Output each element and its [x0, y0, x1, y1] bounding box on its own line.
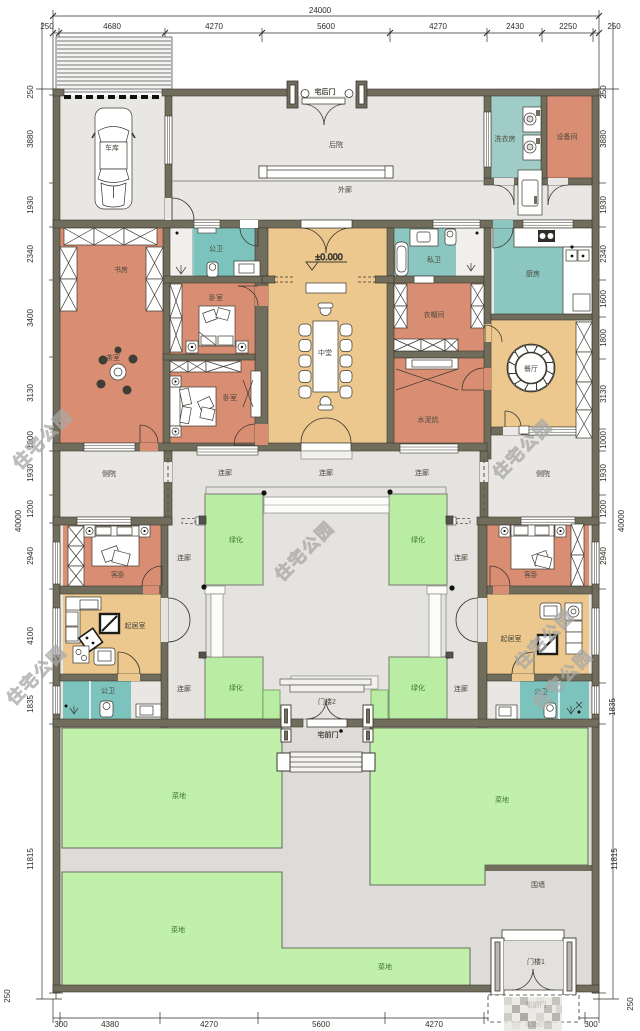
- svg-text:公卫: 公卫: [209, 245, 223, 253]
- svg-text:4100: 4100: [26, 627, 35, 645]
- svg-text:300: 300: [54, 1020, 68, 1029]
- svg-text:卧室: 卧室: [223, 393, 237, 402]
- svg-text:11815: 11815: [610, 848, 619, 870]
- svg-text:2430: 2430: [506, 22, 524, 31]
- svg-text:3880: 3880: [26, 130, 35, 148]
- svg-text:水泥炕: 水泥炕: [418, 415, 439, 424]
- svg-text:250: 250: [599, 85, 608, 99]
- svg-text:1200: 1200: [26, 500, 35, 518]
- svg-text:4270: 4270: [425, 1020, 443, 1029]
- svg-text:1930: 1930: [599, 464, 608, 482]
- svg-text:1930: 1930: [26, 196, 35, 214]
- svg-text:5600: 5600: [312, 1020, 330, 1029]
- svg-text:菜地: 菜地: [172, 791, 186, 800]
- svg-text:中堂: 中堂: [318, 348, 332, 357]
- svg-text:茶室: 茶室: [106, 353, 120, 362]
- svg-text:4270: 4270: [200, 1020, 218, 1029]
- svg-text:1800: 1800: [599, 329, 608, 347]
- svg-text:厨房: 厨房: [526, 269, 540, 278]
- svg-text:4270: 4270: [205, 22, 223, 31]
- svg-text:连廊: 连廊: [177, 553, 191, 562]
- svg-text:250: 250: [607, 22, 621, 31]
- svg-text:3880: 3880: [599, 130, 608, 148]
- svg-text:2940: 2940: [26, 547, 35, 565]
- svg-text:1000: 1000: [599, 431, 608, 449]
- svg-text:菜地: 菜地: [495, 795, 509, 804]
- svg-text:后院: 后院: [329, 140, 343, 149]
- svg-text:连廊: 连廊: [454, 684, 468, 693]
- svg-text:连廊: 连廊: [415, 468, 429, 477]
- svg-text:外廊: 外廊: [338, 185, 352, 194]
- svg-text:300: 300: [584, 1020, 598, 1029]
- svg-text:1600: 1600: [599, 290, 608, 308]
- svg-text:1200: 1200: [599, 500, 608, 518]
- svg-text:4680: 4680: [103, 22, 121, 31]
- svg-text:设备间: 设备间: [557, 132, 578, 141]
- svg-text:车库: 车库: [105, 143, 119, 152]
- svg-text:起居室: 起居室: [125, 621, 146, 630]
- svg-text:2340: 2340: [26, 245, 35, 263]
- svg-text:2340: 2340: [599, 245, 608, 263]
- svg-text:宅后门: 宅后门: [315, 87, 336, 96]
- svg-text:菜地: 菜地: [378, 962, 392, 971]
- svg-text:宅前门: 宅前门: [318, 730, 339, 739]
- svg-text:衣帽间: 衣帽间: [424, 310, 445, 319]
- svg-text:公卫: 公卫: [101, 687, 115, 695]
- svg-text:洗衣房: 洗衣房: [495, 134, 516, 143]
- svg-text:250: 250: [40, 22, 54, 31]
- svg-text:40000: 40000: [14, 509, 23, 532]
- svg-text:3400: 3400: [26, 309, 35, 327]
- svg-text:250: 250: [626, 997, 635, 1011]
- svg-text:围墙: 围墙: [531, 880, 545, 889]
- svg-text:4270: 4270: [429, 22, 447, 31]
- svg-text:连廊: 连廊: [177, 684, 191, 693]
- svg-text:250: 250: [3, 989, 12, 1003]
- svg-text:门楼1: 门楼1: [527, 957, 545, 966]
- svg-text:绿化: 绿化: [411, 683, 425, 692]
- svg-text:起居室: 起居室: [501, 634, 522, 643]
- svg-text:±0.000: ±0.000: [315, 252, 342, 262]
- svg-text:客卧: 客卧: [111, 570, 125, 579]
- svg-text:侧院: 侧院: [536, 469, 550, 478]
- svg-text:3130: 3130: [599, 385, 608, 403]
- svg-text:连廊: 连廊: [319, 468, 333, 477]
- svg-text:2250: 2250: [559, 22, 577, 31]
- svg-text:门楼2: 门楼2: [318, 697, 336, 706]
- svg-text:餐厅: 餐厅: [524, 364, 538, 373]
- svg-text:绿化: 绿化: [229, 535, 243, 544]
- svg-text:24000: 24000: [309, 6, 332, 15]
- svg-text:1835: 1835: [608, 698, 617, 716]
- svg-text:侧院: 侧院: [102, 469, 116, 478]
- svg-text:客卧: 客卧: [524, 570, 538, 579]
- svg-text:11815: 11815: [26, 848, 35, 870]
- svg-text:卧室: 卧室: [209, 293, 223, 302]
- svg-text:绿化: 绿化: [411, 535, 425, 544]
- svg-text:1930: 1930: [599, 196, 608, 214]
- svg-text:连廊: 连廊: [218, 468, 232, 477]
- svg-text:2940: 2940: [599, 547, 608, 565]
- svg-text:书房: 书房: [114, 265, 128, 274]
- svg-text:250: 250: [26, 85, 35, 99]
- svg-text:3130: 3130: [26, 384, 35, 402]
- svg-text:5600: 5600: [317, 22, 335, 31]
- svg-text:菜地: 菜地: [171, 925, 185, 934]
- svg-text:绿化: 绿化: [229, 683, 243, 692]
- svg-text:连廊: 连廊: [454, 553, 468, 562]
- svg-text:40000: 40000: [617, 509, 626, 532]
- svg-text:私卫: 私卫: [427, 255, 441, 264]
- svg-text:4380: 4380: [101, 1020, 119, 1029]
